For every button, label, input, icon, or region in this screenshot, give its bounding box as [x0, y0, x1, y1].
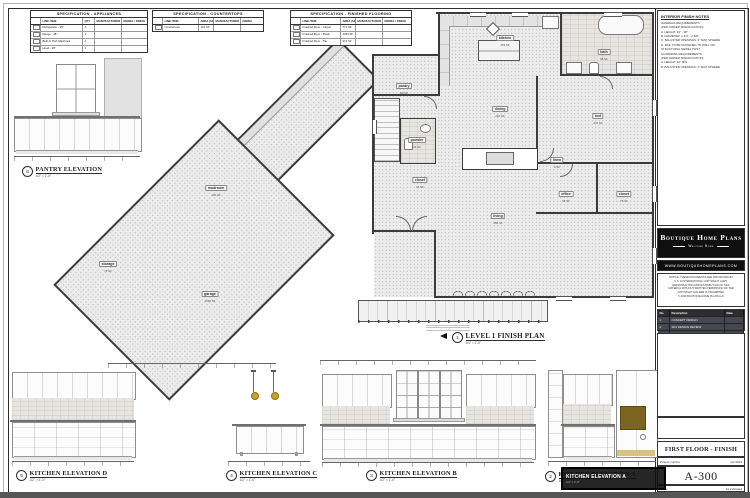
table-row: Countertops131 SF [153, 25, 263, 31]
empty-block [657, 417, 745, 439]
brand-logo: Boutique Home Plans Welcome Home [657, 228, 745, 258]
notice-line: © 2023 BOUTIQUE HOME PLANS LLC [658, 295, 744, 299]
drawing-title: KITCHEN ELEVATION B [380, 470, 457, 478]
col-header: MANUFACTURER [214, 18, 241, 23]
col-header: MANUFACTURER [95, 18, 122, 23]
table-row: Finished Floor - Carpet771 SF [291, 25, 411, 32]
col-header [31, 18, 41, 23]
brand-tagline: Welcome Home [658, 244, 744, 248]
drawing-title: KITCHEN ELEVATION C [240, 470, 318, 478]
col-header: QTY [83, 18, 95, 23]
scale-row: Scale As indicated [657, 485, 745, 492]
col-header [291, 18, 301, 23]
empty-block [657, 333, 745, 417]
rev-cell: 1 [658, 316, 670, 323]
col-header: LINE ITEM [163, 18, 199, 23]
viewport-kitchen-elevation-b[interactable] [318, 368, 538, 466]
rev-cell: CONCEPT DESIGN [670, 316, 725, 323]
col-header: MODEL / FINISH [383, 18, 411, 23]
website-url: WWW.BOUTIQUEHOMEPLANS.COM [658, 261, 744, 271]
sheet-title-box: FIRST FLOOR - FINISH PLAN [657, 441, 745, 457]
refrigerator-symbol [542, 16, 559, 29]
project-number-row: Project number Q2 2023 [657, 457, 745, 466]
table-title: SPECIFICATION - COUNTERTOPS [153, 11, 263, 18]
rev-cell: SD1 DESIGN REVIEW [670, 323, 725, 330]
viewport-kitchen-elevation-a[interactable] [544, 368, 658, 464]
window-symbol [604, 12, 622, 17]
detail-number-bubble: 2 [545, 471, 556, 482]
tagline-dash [673, 246, 685, 247]
sheet-number: A-300 [658, 467, 744, 485]
tag-icon [293, 39, 300, 44]
col-header: MODEL / FINISH [122, 18, 147, 23]
rev-cell [725, 323, 744, 330]
project-number-label: Project number [660, 460, 680, 464]
col-header: MANUFACTURER [356, 18, 383, 23]
tag-icon [293, 32, 300, 37]
viewport-kitchen-elevation-c[interactable] [224, 368, 314, 466]
spec-table-countertops: SPECIFICATION - COUNTERTOPS LINE ITEM AR… [152, 10, 264, 32]
bathtub-symbol [598, 15, 644, 35]
drawing-scale: 1/2" = 1'-0" [380, 478, 457, 482]
elevation-b-title: 3 KITCHEN ELEVATION B 1/2" = 1'-0" [366, 470, 457, 482]
col-header: LINE ITEM [41, 18, 83, 23]
col-header: AREA (SF) [341, 18, 356, 23]
sheet-number-box: A-300 [657, 466, 745, 485]
tag-icon [33, 32, 40, 37]
detail-number-bubble: 5 [16, 470, 27, 481]
tag-icon [293, 25, 300, 30]
table-row: Range - 48"1 [31, 32, 147, 39]
tag-icon [155, 25, 162, 30]
project-number-value: Q2 2023 [730, 460, 742, 464]
drawing-scale: 1/2" = 1'-0" [240, 478, 318, 482]
table-row: Refrigerator - 36"1 [31, 25, 147, 32]
selection-highlight-kitchen-elevation-a[interactable]: KITCHEN ELEVATION A 1/2" = 1'-0" [561, 467, 666, 490]
detail-number-bubble: 4 [226, 470, 237, 481]
table-title: SPECIFICATION - APPLIANCES [31, 11, 147, 18]
drawing-scale: 1/2" = 1'-0" [30, 478, 108, 482]
elevation-c-title: 4 KITCHEN ELEVATION C 1/2" = 1'-0" [226, 470, 317, 482]
elevation-d-title: 5 KITCHEN ELEVATION D 1/2" = 1'-0" [16, 470, 107, 482]
window-symbol [512, 12, 528, 17]
col-header [153, 18, 163, 23]
selection-note: 1/2" = 1'-0" [566, 480, 661, 484]
dimension-line [320, 360, 536, 365]
col-header: AREA (SF) [199, 18, 214, 23]
drawing-title: KITCHEN ELEVATION D [30, 470, 108, 478]
revision-table: No. Description Date 1 CONCEPT DESIGN 2 … [657, 309, 745, 331]
bottom-band [0, 492, 750, 498]
detail-number-bubble: 3 [366, 470, 377, 481]
notes-title: INTERIOR FINISH NOTES [661, 14, 741, 19]
spec-table-flooring: SPECIFICATION - FINISHED FLOORING LINE I… [290, 10, 412, 46]
table-row: Finished Floor - Tile374 SF [291, 39, 411, 45]
interior-finish-notes: INTERIOR FINISH NOTES HANDRAIL REQUIREME… [657, 10, 745, 226]
brand-name: Boutique Home Plans [658, 229, 744, 242]
rev-cell: 2 [658, 323, 670, 330]
window-symbol [470, 12, 486, 17]
scale-value: As indicated [726, 487, 742, 491]
tag-icon [33, 39, 40, 44]
tagline-dash [717, 246, 729, 247]
col-header: LINE ITEM [301, 18, 341, 23]
viewport-pantry-elevation[interactable] [10, 55, 150, 183]
note-line: B. BALUSTER OPENINGS: 4" MAX SPHERE [661, 65, 741, 69]
website-bar: WWW.BOUTIQUEHOMEPLANS.COM [657, 260, 745, 271]
copyright-notice: NOTICE: THESE DOCUMENTS ARE PROTECTED BY… [657, 273, 745, 307]
viewport-kitchen-elevation-d[interactable] [10, 368, 138, 466]
col-header: FINISH [241, 18, 263, 23]
table-title: SPECIFICATION - FINISHED FLOORING [291, 11, 411, 18]
rev-cell [725, 316, 744, 323]
drawing-sheet: SPECIFICATION - APPLIANCES LINE ITEM QTY… [0, 0, 750, 498]
table-row: Finished Floor - Plank2453 SF [291, 32, 411, 39]
tag-icon [33, 25, 40, 30]
